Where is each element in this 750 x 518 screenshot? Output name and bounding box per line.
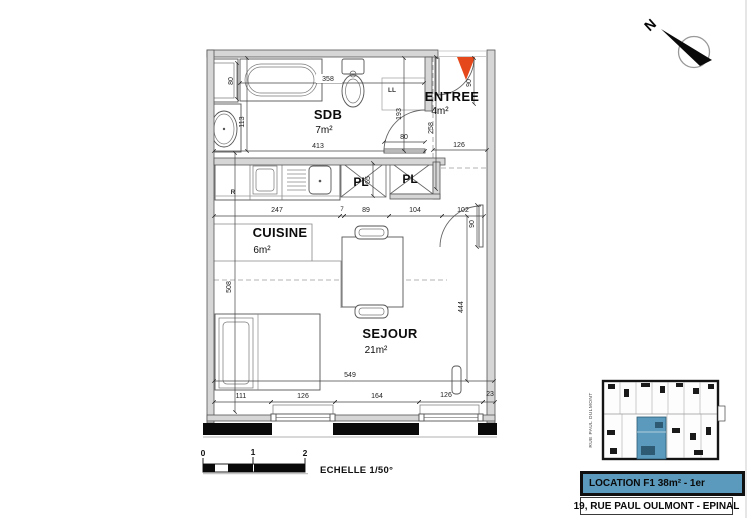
scale-tick-2: 2 — [303, 448, 308, 458]
dim-549: 549 — [344, 372, 356, 379]
title-block: LOCATION F1 38m² - 1er — [580, 471, 745, 496]
address-block: 19, RUE PAUL OULMONT - EPINAL — [580, 497, 733, 515]
dim-89: 89 — [362, 207, 370, 214]
room-area-cuisine: 6m² — [253, 245, 271, 256]
scale-label: ECHELLE 1/50° — [320, 465, 393, 476]
street-label: RUE PAUL OULMONT — [588, 392, 594, 447]
dim-80-door: 80 — [400, 134, 408, 141]
balcony-slab — [203, 423, 497, 437]
compass-needle-icon — [661, 29, 712, 66]
hall-door-leaf — [479, 205, 483, 247]
chair-bottom — [355, 305, 388, 318]
chair-top — [355, 226, 388, 239]
dim-247: 247 — [271, 207, 283, 214]
dim-126-entree: 126 — [453, 142, 465, 149]
dim-90-hall: 90 — [469, 220, 476, 228]
dim-80-tub: 80 — [228, 77, 235, 85]
dim-126-b: 126 — [440, 392, 452, 399]
bathroom-fixtures — [209, 59, 425, 152]
radiator — [452, 366, 461, 394]
room-area-entree: 4m² — [431, 106, 449, 117]
furniture — [215, 226, 461, 394]
room-label-cuisine: CUISINE — [253, 225, 308, 240]
dim-104: 104 — [409, 207, 421, 214]
dim-111: 111 — [236, 393, 247, 400]
dining-table — [342, 237, 403, 307]
room-label-sdb: SDB — [314, 107, 342, 122]
room-area-sdb: 7m² — [315, 125, 333, 136]
fridge-label: R — [231, 189, 236, 196]
north-label: N — [641, 15, 659, 34]
dim-164: 164 — [371, 393, 383, 400]
floor-plan-svg: 358 80 113 413 193 80 258 90 126 247 7 8… — [0, 0, 750, 518]
dim-7: 7 — [340, 207, 344, 213]
dim-23: 23 — [486, 391, 494, 398]
dim-358: 358 — [322, 76, 334, 83]
bathtub — [240, 59, 322, 101]
washer-label: LL — [388, 87, 396, 94]
wall-right — [487, 50, 495, 423]
wall-left — [207, 50, 214, 423]
dim-102: 102 — [457, 207, 469, 214]
scale-tick-1: 1 — [251, 447, 256, 457]
scale-bar: 0 1 2 ECHELLE 1/50° — [201, 447, 394, 476]
dim-126-a: 126 — [297, 393, 309, 400]
dim-90-entry: 90 — [466, 79, 473, 87]
dim-413: 413 — [312, 143, 324, 150]
wall-sdb-bottom — [214, 158, 445, 165]
toilet-tank — [342, 59, 364, 74]
closet-label-2: PL — [402, 172, 417, 186]
title-line1: LOCATION F1 38m² - 1er — [589, 478, 705, 489]
dim-444: 444 — [458, 301, 465, 313]
dim-258: 258 — [428, 122, 435, 134]
dim-113: 113 — [239, 116, 246, 127]
dim-508: 508 — [226, 281, 233, 293]
north-compass: N — [641, 15, 712, 67]
closet-label-1: PL — [353, 175, 368, 189]
title-line2: 19, RUE PAUL OULMONT - EPINAL — [574, 501, 740, 512]
room-label-sejour: SEJOUR — [362, 326, 418, 341]
room-label-entree: ENTREE — [425, 89, 480, 104]
site-plan: RUE PAUL OULMONT — [588, 381, 725, 459]
sdb-door-arc — [384, 110, 425, 151]
scale-tick-0: 0 — [201, 448, 206, 458]
wall-top — [207, 50, 438, 57]
dim-193: 193 — [396, 108, 403, 120]
bed — [215, 314, 320, 390]
room-area-sejour: 21m² — [365, 345, 388, 356]
